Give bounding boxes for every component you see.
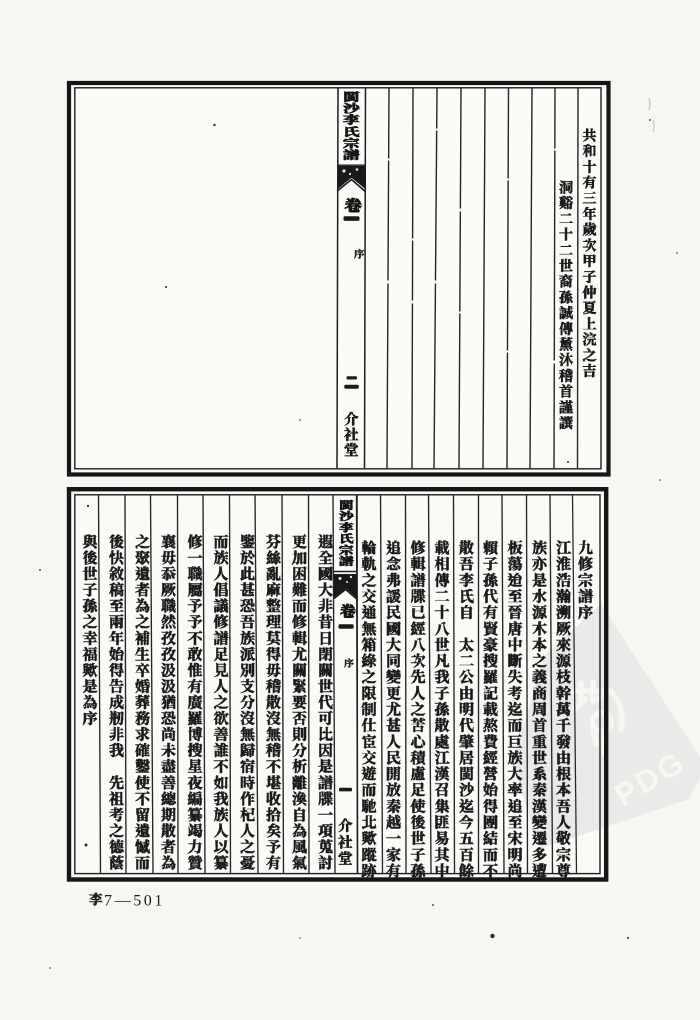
svg-text:7—501: 7—501 — [104, 893, 165, 910]
